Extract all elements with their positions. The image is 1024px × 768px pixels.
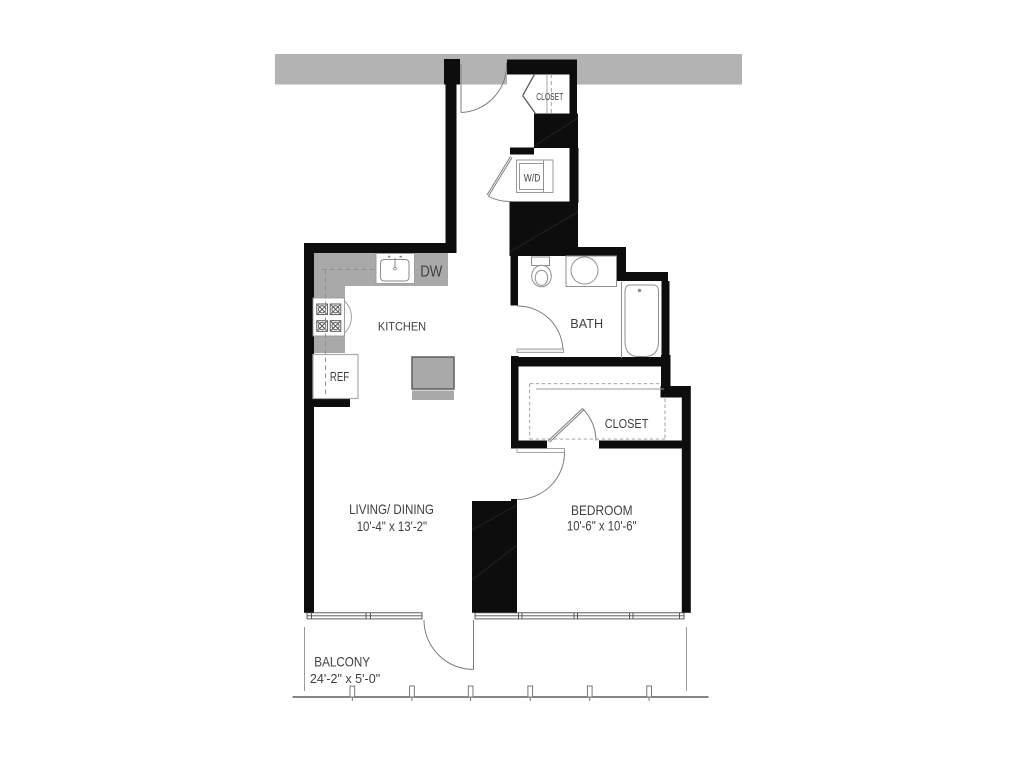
svg-text:BATH: BATH [570, 316, 603, 331]
svg-text:24'-2" x 5'-0": 24'-2" x 5'-0" [310, 671, 381, 686]
svg-text:CLOSET: CLOSET [536, 92, 563, 103]
svg-text:CLOSET: CLOSET [605, 416, 649, 431]
svg-text:LIVING/ DINING: LIVING/ DINING [349, 501, 434, 517]
svg-text:W/D: W/D [524, 172, 541, 184]
svg-text:BEDROOM: BEDROOM [571, 502, 633, 518]
svg-text:REF: REF [330, 369, 349, 384]
svg-text:10'-6" x 10'-6": 10'-6" x 10'-6" [567, 519, 637, 534]
svg-text:BALCONY: BALCONY [314, 655, 370, 670]
svg-text:10'-4" x 13'-2": 10'-4" x 13'-2" [357, 519, 427, 534]
svg-text:KITCHEN: KITCHEN [378, 319, 426, 333]
svg-text:DW: DW [420, 263, 442, 280]
